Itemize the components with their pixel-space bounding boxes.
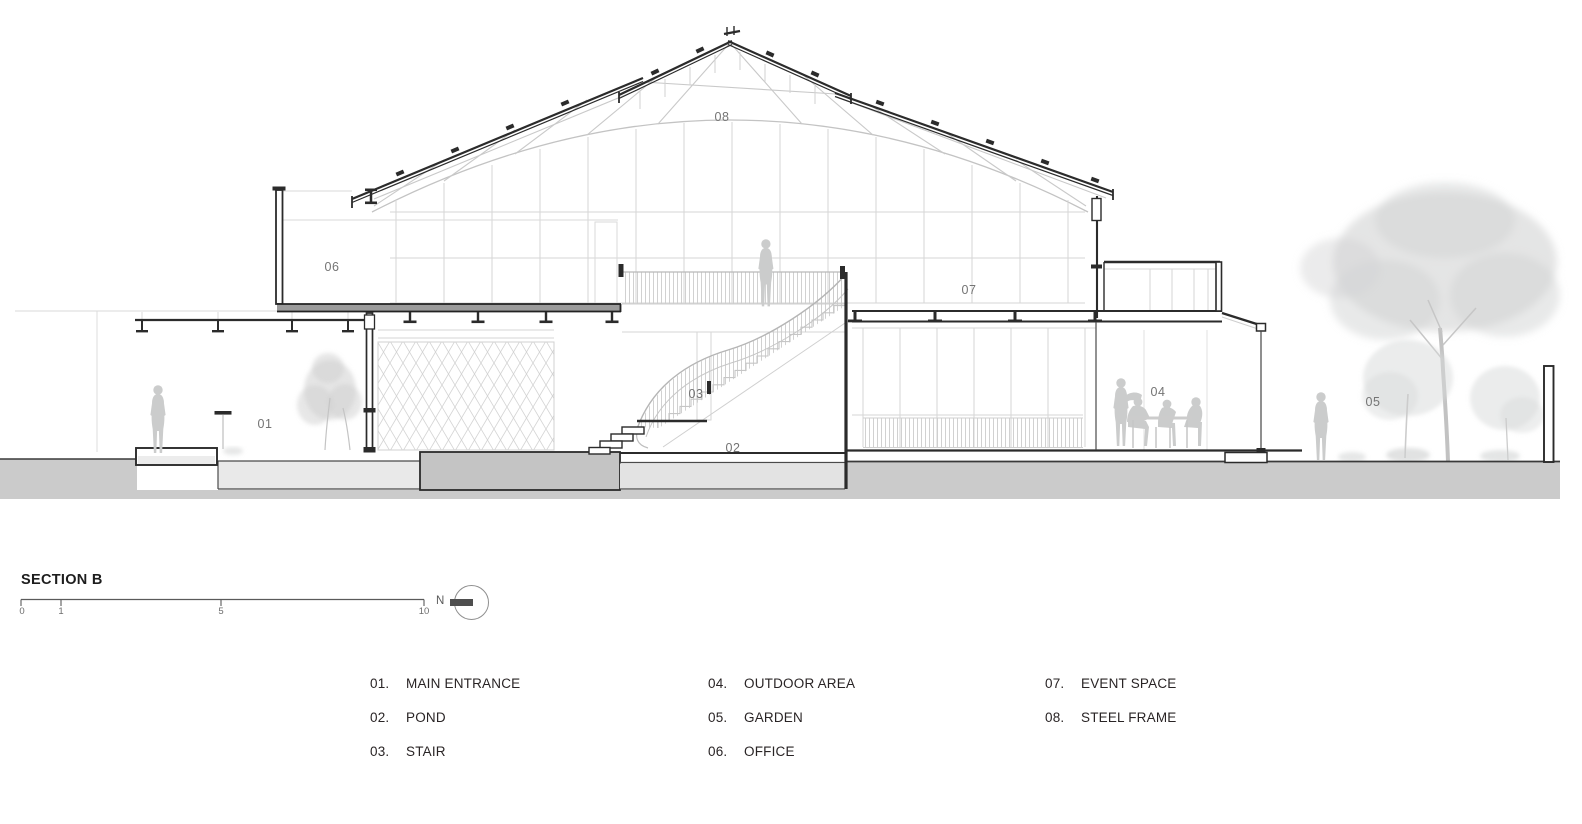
legend-item: 04. OUTDOOR AREA	[708, 677, 855, 691]
slat-screen	[863, 418, 1083, 448]
office-wing-glazing	[283, 191, 618, 303]
office-wing	[273, 187, 286, 305]
section-title: SECTION B	[21, 572, 103, 588]
balcony-railing	[622, 272, 845, 304]
sunken-walk	[218, 461, 420, 489]
roof-cleats	[396, 46, 1100, 183]
legend-num: 05.	[708, 711, 744, 725]
floor-slabs	[277, 304, 1222, 323]
right-canopy	[1222, 313, 1266, 453]
right-column-downpipe	[1091, 196, 1102, 450]
north-arrow-bar	[450, 599, 473, 606]
legend-item: 05. GARDEN	[708, 711, 855, 725]
legend-label: STEEL FRAME	[1081, 711, 1176, 725]
legend-item: 01. MAIN ENTRANCE	[370, 677, 520, 691]
legend-num: 01.	[370, 677, 406, 691]
ground-substrate	[137, 490, 845, 499]
scale-tick-1: 1	[58, 606, 63, 617]
stair-marker-tick	[707, 381, 711, 394]
seated-person	[1158, 400, 1176, 446]
legend-label: EVENT SPACE	[1081, 677, 1176, 691]
legend-num: 07.	[1045, 677, 1081, 691]
legend-num: 08.	[1045, 711, 1081, 725]
ground	[0, 448, 1560, 499]
scale-tick-0: 0	[19, 606, 24, 617]
entry-platform-face	[138, 456, 215, 464]
drawing-label-01: 01	[257, 417, 272, 431]
drawing-label-02: 02	[725, 441, 740, 455]
steel-truss	[372, 45, 1106, 212]
legend-num: 02.	[370, 711, 406, 725]
legend-item: 08. STEEL FRAME	[1045, 711, 1176, 725]
legend-column-3: 07. EVENT SPACE 08. STEEL FRAME	[1045, 677, 1176, 745]
drawing-label-08: 08	[714, 110, 729, 124]
legend-item: 03. STAIR	[370, 745, 520, 759]
legend-label: MAIN ENTRANCE	[406, 677, 520, 691]
garden-small-tree	[1470, 366, 1544, 460]
wall-cap	[273, 187, 286, 191]
seated-person	[1127, 398, 1150, 446]
plinth-block	[420, 452, 620, 490]
drawing-label-07: 07	[961, 283, 976, 297]
legend-num: 06.	[708, 745, 744, 759]
legend-label: GARDEN	[744, 711, 803, 725]
legend-column-1: 01. MAIN ENTRANCE 02. POND 03. STAIR	[370, 677, 520, 779]
legend-label: POND	[406, 711, 446, 725]
drawing-label-06: 06	[324, 260, 339, 274]
bollard	[215, 411, 232, 449]
legend-item: 02. POND	[370, 711, 520, 725]
legend-num: 03.	[370, 745, 406, 759]
legend-label: OFFICE	[744, 745, 795, 759]
scale-tick-10: 10	[419, 606, 430, 617]
legend-num: 04.	[708, 677, 744, 691]
ground-left	[0, 459, 137, 499]
legend-column-2: 04. OUTDOOR AREA 05. GARDEN 06. OFFICE	[708, 677, 855, 779]
entrance-canopy	[135, 320, 366, 332]
north-label: N	[436, 595, 444, 607]
person-entrance	[150, 385, 165, 453]
legend-label: OUTDOOR AREA	[744, 677, 855, 691]
scale-tick-5: 5	[218, 606, 223, 617]
lattice-screen	[378, 342, 554, 450]
drawing-label-03: 03	[688, 387, 703, 401]
pond	[620, 453, 845, 489]
garden-wall-post	[1544, 366, 1554, 462]
legend-item: 07. EVENT SPACE	[1045, 677, 1176, 691]
right-step	[1225, 453, 1267, 463]
right-slab	[848, 311, 1222, 322]
person-garden	[1313, 392, 1328, 460]
drawing-label-04: 04	[1150, 385, 1165, 399]
drawing-sheet: 01 02 03 04 05 06 07 08 SECTION B 0 1 5 …	[0, 0, 1582, 824]
clerestory-glazing	[640, 52, 815, 109]
legend-item: 06. OFFICE	[708, 745, 855, 759]
ground-right	[845, 462, 1560, 499]
left-column	[364, 313, 376, 453]
legend-label: STAIR	[406, 745, 446, 759]
entrance-tree	[297, 353, 362, 450]
drawing-label-05: 05	[1365, 395, 1380, 409]
